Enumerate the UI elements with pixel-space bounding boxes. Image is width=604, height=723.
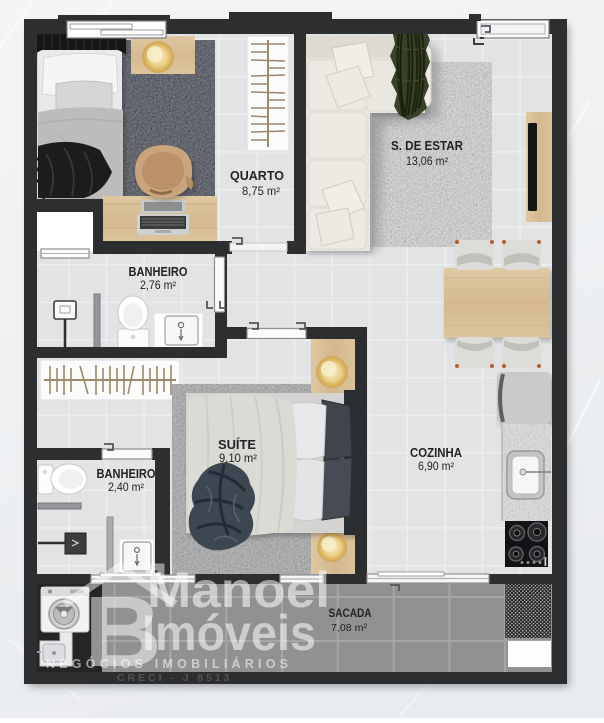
svg-text:8,75 m²: 8,75 m² [242, 186, 280, 198]
svg-text:13,06 m²: 13,06 m² [406, 156, 448, 168]
svg-text:NEGÓCIOS IMOBILIÁRIOS: NEGÓCIOS IMOBILIÁRIOS [46, 656, 292, 671]
svg-text:2,40 m²: 2,40 m² [108, 482, 144, 494]
svg-text:SACADA: SACADA [329, 608, 372, 620]
svg-text:6,90 m²: 6,90 m² [418, 461, 454, 473]
svg-text:SUÍTE: SUÍTE [218, 437, 256, 452]
svg-text:9,10 m²: 9,10 m² [219, 453, 257, 465]
svg-text:Imóveis: Imóveis [142, 605, 316, 661]
svg-text:QUARTO: QUARTO [230, 169, 284, 183]
svg-text:7,08 m²: 7,08 m² [331, 622, 367, 634]
svg-text:COZINHA: COZINHA [410, 446, 462, 460]
svg-text:CRECI - J 8513: CRECI - J 8513 [117, 672, 232, 684]
svg-text:2,76 m²: 2,76 m² [140, 280, 176, 292]
svg-text:S. DE ESTAR: S. DE ESTAR [391, 139, 463, 153]
svg-text:BANHEIRO: BANHEIRO [97, 467, 156, 481]
svg-text:BANHEIRO: BANHEIRO [129, 265, 188, 279]
